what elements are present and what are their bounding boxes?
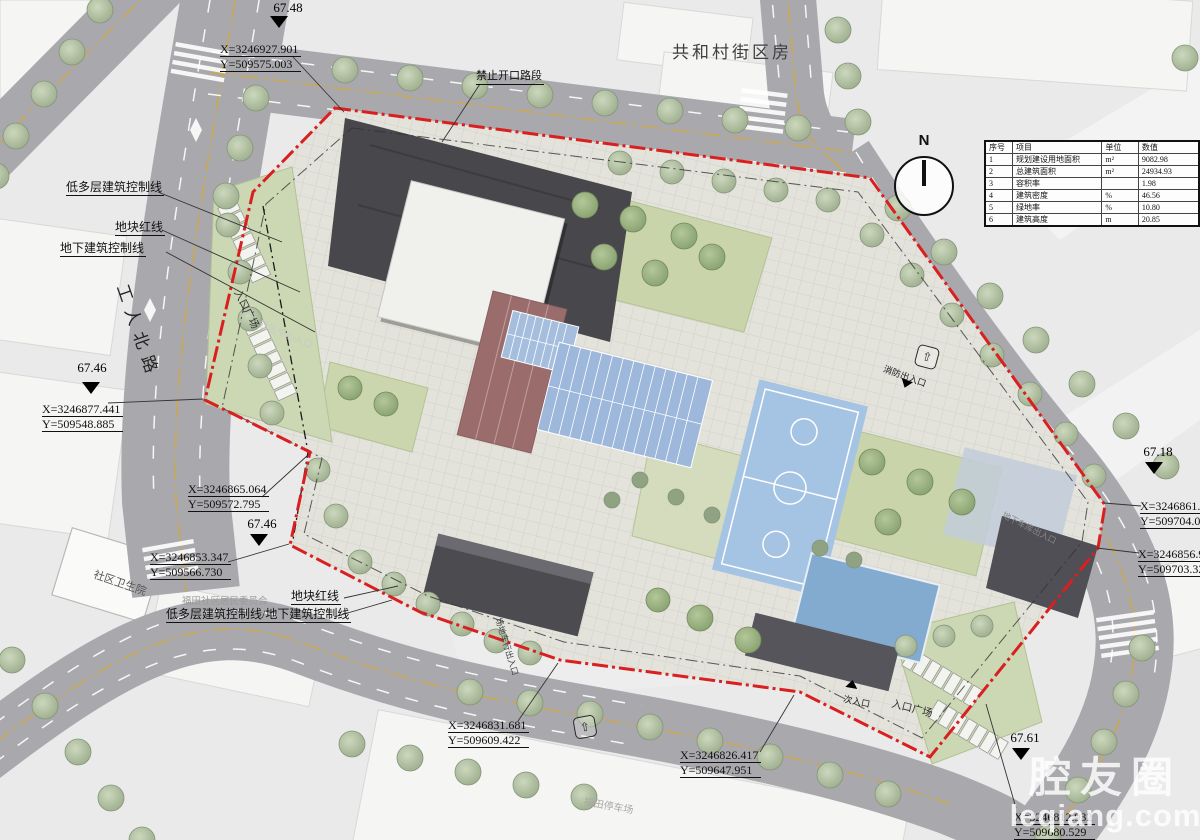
- coord-x: X=3246861.1: [1140, 499, 1200, 514]
- tree: [900, 263, 924, 287]
- site-plan-canvas: [0, 0, 1200, 840]
- table-cell: 2: [985, 166, 1012, 178]
- table-header: 序号: [985, 141, 1012, 154]
- tree: [875, 781, 901, 807]
- tree: [846, 552, 862, 568]
- elevation-marker: 67.46: [62, 360, 122, 376]
- table-row: 4建筑密度%46.56: [985, 190, 1199, 202]
- tree: [397, 745, 423, 771]
- table-cell: 建筑高度: [1012, 214, 1101, 227]
- north-arrow-icon: [894, 156, 954, 216]
- table-cell: 1.98: [1138, 178, 1199, 190]
- coord-x: X=3246826.417: [680, 748, 761, 763]
- project-data-table: 序号项目单位数值1规划建设用地面积m²9082.982总建筑面积m²24934.…: [984, 140, 1200, 227]
- table-row: 2总建筑面积m²24934.93: [985, 166, 1199, 178]
- tree: [382, 572, 406, 596]
- tree: [637, 714, 663, 740]
- elevation-marker: 67.46: [232, 516, 292, 532]
- table-cell: [1102, 178, 1138, 190]
- table-cell: 46.56: [1138, 190, 1199, 202]
- tree: [1113, 681, 1139, 707]
- coord-x: X=3246877.441: [42, 402, 123, 417]
- tree: [457, 679, 483, 705]
- entrance-arrow-icon: ⇧: [572, 714, 597, 739]
- tree: [620, 206, 646, 232]
- no-opening-label: 禁止开口路段: [476, 69, 544, 85]
- coord-y: Y=509548.885: [42, 417, 123, 432]
- tree: [1129, 635, 1155, 661]
- coord-y: Y=509647.951: [680, 763, 761, 778]
- tree: [971, 615, 993, 637]
- tree: [949, 489, 975, 515]
- coordinate-label: X=3246853.347Y=509566.730: [150, 550, 231, 580]
- site-plan: 67.48 67.46 67.46 67.18 67.61 X=3246927.…: [0, 0, 1200, 840]
- tree: [65, 739, 91, 765]
- tree: [324, 504, 348, 528]
- tree: [816, 188, 840, 212]
- table-cell: 容积率: [1012, 178, 1101, 190]
- coord-y: Y=509704.05: [1140, 514, 1200, 529]
- table-cell: 建筑密度: [1012, 190, 1101, 202]
- tree: [785, 115, 811, 141]
- table-cell: %: [1102, 190, 1138, 202]
- tree: [668, 489, 684, 505]
- tree: [642, 260, 668, 286]
- table-row: 3容积率1.98: [985, 178, 1199, 190]
- tree: [646, 588, 670, 612]
- underground-control-line-label: 地下建筑控制线: [60, 241, 146, 257]
- coord-y: Y=509703.328: [1138, 562, 1200, 577]
- tree: [735, 627, 761, 653]
- table-cell: 24934.93: [1138, 166, 1199, 178]
- table-cell: m²: [1102, 154, 1138, 166]
- tree: [0, 647, 25, 673]
- tree: [845, 109, 871, 135]
- table-cell: 20.85: [1138, 214, 1199, 227]
- tree: [632, 472, 648, 488]
- tree: [1172, 45, 1198, 71]
- coord-x: X=3246865.064: [188, 482, 269, 497]
- coordinate-label: X=3246826.417Y=509647.951: [680, 748, 761, 778]
- tree: [455, 759, 481, 785]
- tree: [397, 65, 423, 91]
- tree: [1069, 371, 1095, 397]
- tree: [812, 540, 828, 556]
- tree: [243, 85, 269, 111]
- tree: [32, 693, 58, 719]
- tree: [1065, 777, 1091, 803]
- table-row: 5绿地率%10.80: [985, 202, 1199, 214]
- table-cell: 3: [985, 178, 1012, 190]
- tree: [860, 223, 884, 247]
- tree: [306, 458, 330, 482]
- coordinate-label: X=3246927.901Y=509575.003: [220, 42, 301, 72]
- tree: [940, 303, 964, 327]
- low-rise-control-line-label: 低多层建筑控制线: [66, 180, 164, 196]
- coordinate-label: X=3246812.932Y=509680.529: [1014, 810, 1095, 840]
- coord-x: X=3246812.932: [1014, 810, 1095, 825]
- district-label: 共和村街区房: [672, 46, 792, 60]
- tree: [1113, 413, 1139, 439]
- tree: [657, 98, 683, 124]
- table-header: 单位: [1102, 141, 1138, 154]
- north-label: N: [912, 132, 936, 149]
- tree: [895, 635, 917, 657]
- elevation-triangle-icon: [1012, 748, 1030, 760]
- tree: [374, 392, 398, 416]
- table-cell: 绿地率: [1012, 202, 1101, 214]
- coord-x: X=3246831.681: [448, 718, 529, 733]
- elevation-triangle-icon: [82, 382, 100, 394]
- coord-y: Y=509572.795: [188, 497, 269, 512]
- tree: [699, 244, 725, 270]
- tree: [604, 492, 620, 508]
- table-cell: 5: [985, 202, 1012, 214]
- tree: [1091, 729, 1117, 755]
- tree: [248, 354, 272, 378]
- tree: [59, 39, 85, 65]
- coordinate-label: X=3246877.441Y=509548.885: [42, 402, 123, 432]
- tree: [722, 107, 748, 133]
- elevation-marker: 67.18: [1128, 444, 1188, 460]
- tree: [31, 81, 57, 107]
- elevation-triangle-icon: [1145, 462, 1163, 474]
- elevation-marker: 67.48: [258, 0, 318, 16]
- table-cell: 规划建设用地面积: [1012, 154, 1101, 166]
- tree: [671, 223, 697, 249]
- tree: [977, 283, 1003, 309]
- committee-label: 福田社区居民委员会: [182, 595, 268, 609]
- coord-y: Y=509566.730: [150, 565, 231, 580]
- coordinate-label: X=3246861.1Y=509704.05: [1140, 499, 1200, 529]
- coord-y: Y=509680.529: [1014, 825, 1095, 840]
- tree: [87, 0, 113, 23]
- red-line-label-2: 地块红线: [291, 589, 341, 605]
- tree: [835, 63, 861, 89]
- tree: [3, 123, 29, 149]
- table-row: 1规划建设用地面积m²9082.98: [985, 154, 1199, 166]
- table-cell: 4: [985, 190, 1012, 202]
- coordinate-label: X=3246856.97Y=509703.328: [1138, 547, 1200, 577]
- combined-control-line-label: 低多层建筑控制线/地下建筑控制线: [166, 607, 351, 623]
- table-cell: m²: [1102, 166, 1138, 178]
- tree: [817, 762, 843, 788]
- table-cell: %: [1102, 202, 1138, 214]
- tree: [980, 343, 1004, 367]
- tree: [332, 57, 358, 83]
- tree: [339, 731, 365, 757]
- tree: [875, 509, 901, 535]
- tree: [660, 160, 684, 184]
- tree: [98, 785, 124, 811]
- coord-y: Y=509575.003: [220, 57, 301, 72]
- table-cell: 总建筑面积: [1012, 166, 1101, 178]
- tree: [572, 192, 598, 218]
- tree: [907, 469, 933, 495]
- coord-x: X=3246927.901: [220, 42, 301, 57]
- elevation-marker: 67.61: [995, 730, 1055, 746]
- tree: [213, 183, 239, 209]
- table-cell: 10.80: [1138, 202, 1199, 214]
- elevation-triangle-icon: [270, 16, 288, 28]
- table-header: 数值: [1138, 141, 1199, 154]
- table-cell: 1: [985, 154, 1012, 166]
- tree: [591, 244, 617, 270]
- tree: [450, 612, 474, 636]
- coord-x: X=3246856.97: [1138, 547, 1200, 562]
- table-header: 项目: [1012, 141, 1101, 154]
- tree: [518, 641, 542, 665]
- coord-y: Y=509609.422: [448, 733, 529, 748]
- tree: [592, 90, 618, 116]
- tree: [931, 239, 957, 265]
- tree: [825, 17, 851, 43]
- elevation-triangle-icon: [250, 534, 268, 546]
- table-cell: m: [1102, 214, 1138, 227]
- tree: [1054, 422, 1078, 446]
- tree: [859, 449, 885, 475]
- tree: [687, 605, 713, 631]
- tree: [338, 376, 362, 400]
- tree: [1082, 464, 1106, 488]
- tree: [704, 507, 720, 523]
- tree: [513, 772, 539, 798]
- tree: [527, 82, 553, 108]
- red-line-label: 地块红线: [115, 220, 165, 236]
- table-cell: 6: [985, 214, 1012, 227]
- coordinate-label: X=3246831.681Y=509609.422: [448, 718, 529, 748]
- table-cell: 9082.98: [1138, 154, 1199, 166]
- tree: [712, 169, 736, 193]
- tree: [608, 151, 632, 175]
- tree: [1023, 327, 1049, 353]
- table-row: 6建筑高度m20.85: [985, 214, 1199, 227]
- coord-x: X=3246853.347: [150, 550, 231, 565]
- tree: [933, 625, 955, 647]
- tree: [227, 135, 253, 161]
- coordinate-label: X=3246865.064Y=509572.795: [188, 482, 269, 512]
- tree: [260, 401, 284, 425]
